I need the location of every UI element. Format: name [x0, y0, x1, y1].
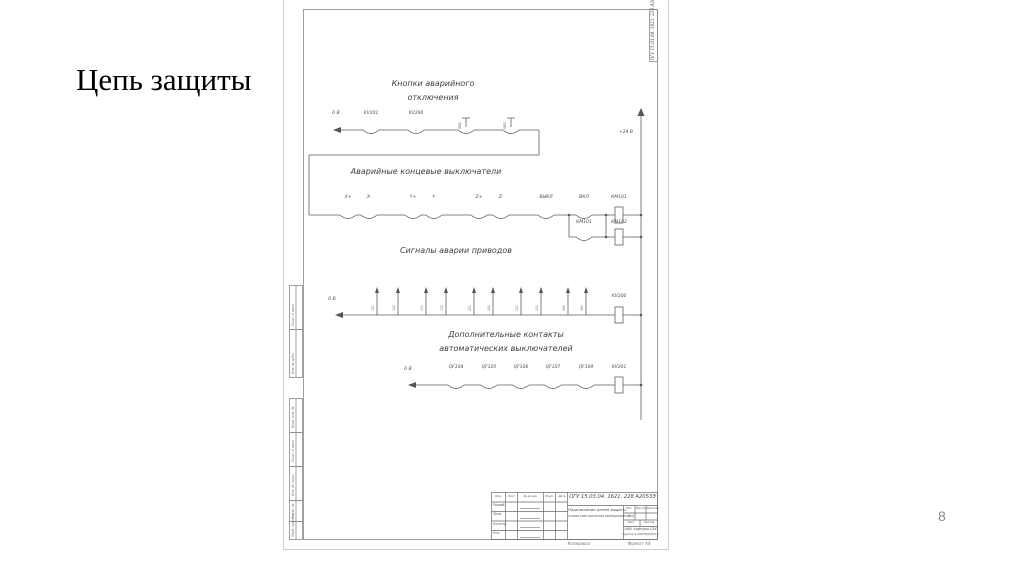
margin-stamp-label: Инв. № подл.: [292, 474, 295, 496]
titleblock-massa-label: Масса: [636, 507, 645, 510]
limit-label-y-plus: Y+: [410, 196, 417, 201]
coil-km102: [615, 229, 623, 245]
coil-label-kv200: KV200: [612, 295, 627, 300]
margin-stamp-label: Инв. № дубл.: [292, 352, 295, 374]
coil-kv200: [615, 307, 623, 323]
titleblock-org-line1: АКИ, кафедра САУ: [624, 528, 656, 531]
format-label: Формат А4: [628, 542, 651, 546]
signal-label: 252: [536, 305, 539, 311]
margin-stamp-label: Взам. инв. №: [292, 406, 295, 428]
presentation-slide: Цепь защиты 8: [0, 0, 1024, 574]
drawing-sheet: ОГУ 15.03.04. 1621. 228 А2053Э Подп. и д…: [283, 0, 669, 550]
breaker-contact-blades: [448, 385, 594, 389]
pushbutton-label-sb1: SB1: [459, 122, 463, 129]
bus-voltage-label: +24 В: [619, 131, 633, 136]
alarm-signal-stems: [377, 292, 586, 315]
titleblock-sheets-label: Листов: [644, 521, 654, 524]
contact-label-kv200: KV200: [409, 112, 424, 117]
titleblock-header-izm: Изм.: [495, 495, 502, 498]
contact-label-km101: КМ101: [576, 221, 592, 226]
zero-volt-label-1: 0 В: [332, 112, 339, 117]
section-title-limits: Аварийные концевые выключатели: [351, 168, 502, 176]
titleblock-doc-name: Подключение цепей защиты: [568, 508, 623, 512]
corner-stamp-code: ОГУ 15.03.04. 1621. 228 А2053Э: [651, 0, 655, 60]
section-title-alarms: Сигналы аварии приводов: [400, 247, 512, 255]
copied-label: Копировал: [568, 542, 591, 546]
zero-volt-label-3: 0 В: [404, 368, 411, 373]
coil-kv201: [615, 377, 623, 393]
coil-label-km101: КМ101: [611, 196, 627, 201]
titleblock-masshtab-label: Масштаб: [645, 507, 658, 510]
breaker-label-qf105: QF105: [482, 366, 497, 371]
limit-label-on: ВКЛ: [579, 196, 589, 201]
section-title-breakers-2: автоматических выключателей: [439, 345, 572, 353]
contact-blades: [363, 130, 519, 134]
zero-arrow-1: [333, 127, 341, 133]
slide-title: Цепь защиты: [76, 62, 251, 98]
titleblock-sheet-label: Лист: [627, 521, 634, 524]
zero-volt-label-2: 0 В: [328, 298, 335, 303]
latch-branch-wire: [569, 215, 615, 241]
titleblock-role-utv: Утв.: [493, 532, 500, 535]
bus-arrow-up: [638, 108, 645, 116]
contact-label-kv201: KV201: [364, 112, 379, 117]
titleblock-doc-subname: (схема электрическая принципиальная): [568, 515, 623, 518]
signal-label: 102: [393, 305, 396, 311]
titleblock-org-line2: группа З-16АТВ(б)ОП-2: [622, 533, 659, 536]
signal-label: 380: [563, 305, 566, 311]
breaker-label-qf104: QF104: [449, 366, 464, 371]
titleblock-header-data: Дата: [558, 495, 565, 498]
signature-scribble: [520, 518, 540, 519]
zero-arrow-2: [335, 312, 343, 318]
titleblock-role-nkontr: Н.контр.: [493, 523, 507, 526]
pushbutton-label-sb2: SB2: [504, 122, 508, 129]
signature-scribble: [520, 537, 540, 538]
signal-label: 201: [469, 305, 472, 311]
limit-label-y-minus: Y-: [432, 196, 436, 201]
signal-label: 202: [488, 305, 491, 311]
section-title-breakers-1: Дополнительные контакты: [448, 331, 564, 339]
circuit-wires: [309, 116, 641, 420]
signature-scribble: [520, 527, 540, 528]
margin-stamp-label: Перв. примен.: [292, 513, 295, 537]
signal-label: 152: [441, 305, 444, 311]
signature-scribble: [520, 508, 540, 509]
limit-label-z-minus: Z-: [499, 196, 503, 201]
coil-label-kv201: KV201: [612, 366, 627, 371]
breaker-label-qf107: QF107: [546, 366, 561, 371]
titleblock-role-razrab: Разраб.: [493, 504, 506, 507]
margin-stamp-label: Подп. и дата: [292, 304, 295, 326]
coil-links: [623, 215, 641, 237]
titleblock-doc-code: ОГУ 15.03.04. 1621. 228 А2053Э: [569, 495, 656, 500]
breaker-label-qf106: QF106: [514, 366, 529, 371]
schematic-drawing: [284, 0, 670, 550]
limit-label-x-plus: X+: [345, 196, 352, 201]
titleblock-role-prov: Пров.: [493, 513, 502, 516]
limit-label-off: ВЫКЛ: [539, 196, 552, 201]
signal-label: 151: [421, 305, 424, 311]
signal-label: 101: [372, 305, 375, 311]
section-title-buttons-2: отключения: [407, 94, 458, 102]
signal-label: 381: [581, 305, 584, 311]
limit-contact-blades: [340, 215, 592, 219]
titleblock-lit-label: Лит.: [626, 507, 632, 510]
margin-stamp-label: Подп. и дата: [292, 440, 295, 462]
signal-label: 251: [516, 305, 519, 311]
titleblock-lit-value: У: [628, 514, 630, 518]
limit-label-x-minus: X-: [367, 196, 371, 201]
page-number: 8: [938, 508, 946, 524]
limit-label-z-plus: Z+: [476, 196, 483, 201]
section-title-buttons-1: Кнопки аварийного: [392, 80, 475, 88]
breaker-label-qf109: QF109: [579, 366, 594, 371]
titleblock-header-list: Лист: [508, 495, 515, 498]
zero-arrow-3: [408, 382, 416, 388]
titleblock-header-podp: Подп.: [545, 495, 553, 498]
titleblock-header-dokum: № докум.: [524, 495, 538, 498]
coil-label-km102: КМ102: [611, 221, 627, 226]
drawing-frame: [290, 10, 658, 540]
